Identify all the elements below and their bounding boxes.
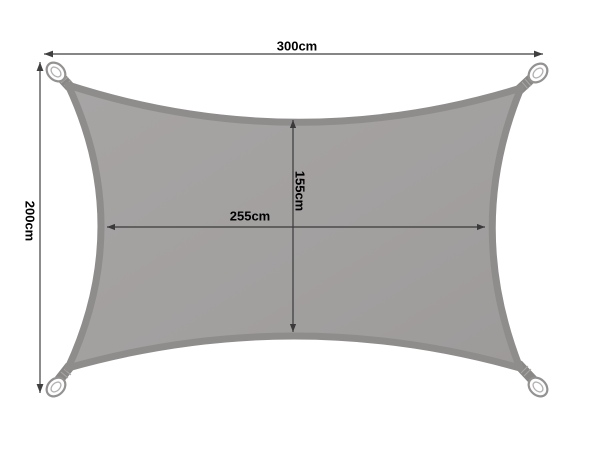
product-diagram: 300cm 200cm 255cm 155cm [0, 0, 600, 450]
label-inner-height: 155cm [294, 171, 307, 211]
arrowhead-up-icon [37, 62, 44, 71]
arrowhead-left-icon [44, 51, 53, 58]
label-inner-width: 255cm [230, 210, 270, 223]
dimension-line-outer-height [37, 62, 44, 393]
sail-diagram-canvas [0, 0, 600, 450]
label-outer-height: 200cm [24, 201, 37, 241]
arrowhead-down-icon [37, 384, 44, 393]
label-outer-width: 300cm [277, 40, 317, 53]
arrowhead-right-icon [534, 51, 543, 58]
